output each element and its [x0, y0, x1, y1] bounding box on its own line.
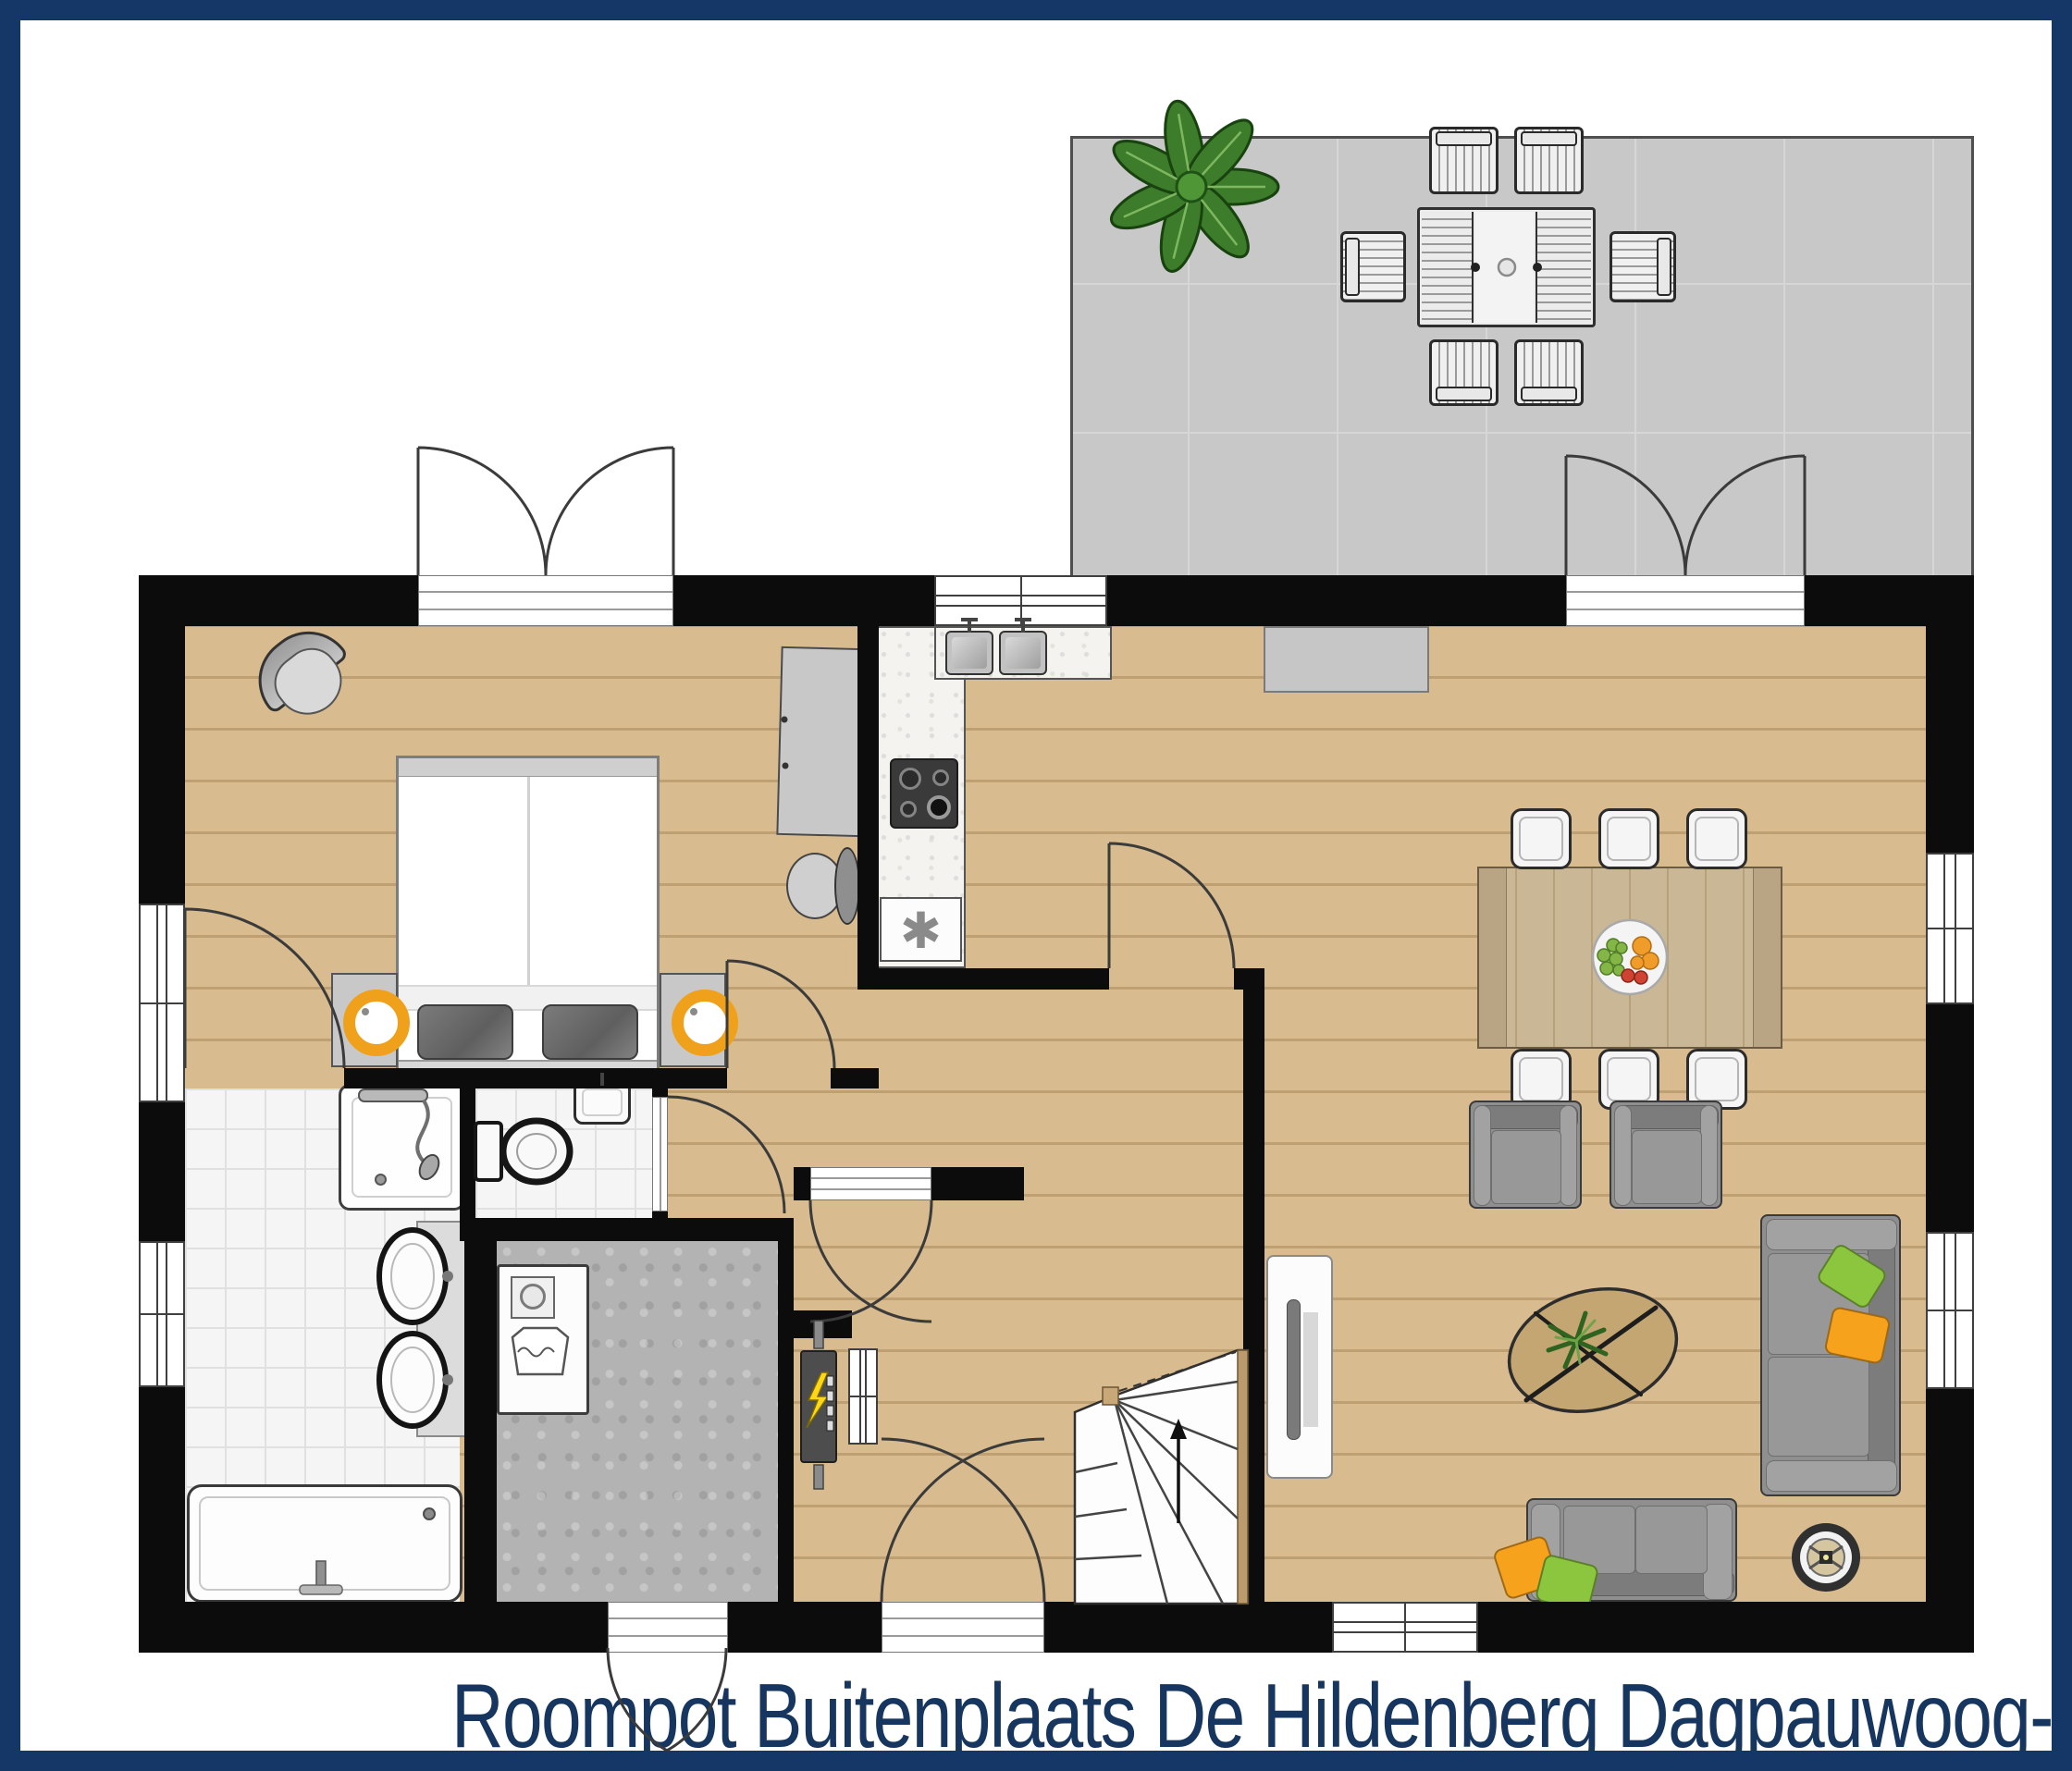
wall [1243, 990, 1264, 1602]
washing-machine [497, 1264, 589, 1415]
nightstand [331, 973, 398, 1067]
tv-cabinet [1266, 1255, 1333, 1479]
wall [464, 1241, 497, 1602]
wall [857, 968, 1109, 990]
shower-drain [375, 1174, 387, 1186]
wall [344, 1068, 727, 1088]
bathtub-drain [423, 1507, 436, 1520]
plan-title: Roompot Buitenplaats De Hildenberg Dagpa… [451, 1665, 1902, 1766]
pillow-dark [417, 1004, 513, 1060]
burner [899, 768, 921, 790]
wall [673, 575, 934, 626]
outdoor-chair [1429, 127, 1498, 194]
wall [460, 1088, 475, 1232]
bedside-lamp [672, 990, 738, 1056]
french-door-right-leaf [546, 448, 673, 575]
wall [1234, 968, 1264, 990]
window [139, 904, 185, 1102]
gas-hob [890, 758, 958, 829]
wall [1478, 1602, 1974, 1653]
window [934, 575, 1107, 626]
wall [139, 621, 185, 904]
window [1332, 1602, 1478, 1653]
wall [1805, 575, 1974, 626]
tv [1287, 1299, 1301, 1440]
wall [139, 1102, 185, 1241]
wall [139, 575, 418, 626]
table-leaf-left [1422, 212, 1474, 323]
wall [831, 1068, 879, 1088]
outdoor-chair [1514, 127, 1584, 194]
window [848, 1348, 878, 1445]
wall [460, 1218, 794, 1241]
bedside-lamp [343, 990, 410, 1056]
wall [728, 1602, 882, 1653]
dining-chair [1598, 808, 1659, 869]
freezer-symbol: ✱ [900, 904, 942, 959]
bed-headbar [399, 758, 657, 777]
back-door-threshold [608, 1602, 728, 1653]
wall [778, 1310, 852, 1338]
outdoor-chair [1609, 231, 1676, 302]
double-bed [396, 756, 660, 1076]
wall [1926, 621, 1974, 853]
front-door-threshold [882, 1602, 1044, 1653]
outdoor-chair [1429, 339, 1498, 406]
wall [1107, 575, 1566, 626]
sideboard [1264, 626, 1429, 693]
shower [339, 1084, 465, 1211]
dining-chair [1511, 808, 1572, 869]
dining-chair [1686, 808, 1747, 869]
door-threshold [652, 1097, 668, 1211]
french-door-threshold [418, 575, 673, 626]
armchair [1609, 1101, 1722, 1209]
bed-divider [527, 777, 530, 985]
floor-plan: ✱ [0, 0, 2072, 1771]
wall [139, 1602, 608, 1653]
french-door-threshold [1566, 575, 1805, 626]
table-leaf-right [1535, 212, 1591, 323]
wardrobe [776, 646, 866, 837]
freezer: ✱ [880, 897, 962, 962]
window [1926, 853, 1974, 1004]
kitchen-sink [945, 631, 993, 675]
burner [927, 795, 951, 819]
burner [932, 769, 949, 786]
outdoor-dining-table [1417, 207, 1596, 327]
window [1926, 1232, 1974, 1389]
table-leaf-middle [1475, 212, 1534, 323]
window [139, 1241, 185, 1387]
burner [900, 801, 917, 818]
wall [794, 1167, 810, 1200]
wall [1926, 1004, 1974, 1232]
french-door-left-leaf [418, 448, 546, 575]
door-threshold [810, 1167, 931, 1200]
wall [931, 1167, 1024, 1200]
electrical-panel [800, 1350, 837, 1463]
wall [778, 1241, 794, 1602]
dining-table [1477, 867, 1782, 1049]
nightstand [660, 973, 726, 1067]
kitchen-sink [999, 631, 1047, 675]
bathtub [187, 1484, 462, 1603]
wall [857, 621, 879, 990]
outdoor-chair [1340, 231, 1406, 302]
desk-chair [786, 847, 864, 927]
wall [652, 1084, 668, 1097]
pillow-dark [542, 1004, 638, 1060]
armchair [1469, 1101, 1582, 1209]
outdoor-chair [1514, 339, 1584, 406]
wall [1044, 1602, 1332, 1653]
washbasin-counter [416, 1221, 468, 1437]
tv-backpanel [1303, 1312, 1318, 1427]
